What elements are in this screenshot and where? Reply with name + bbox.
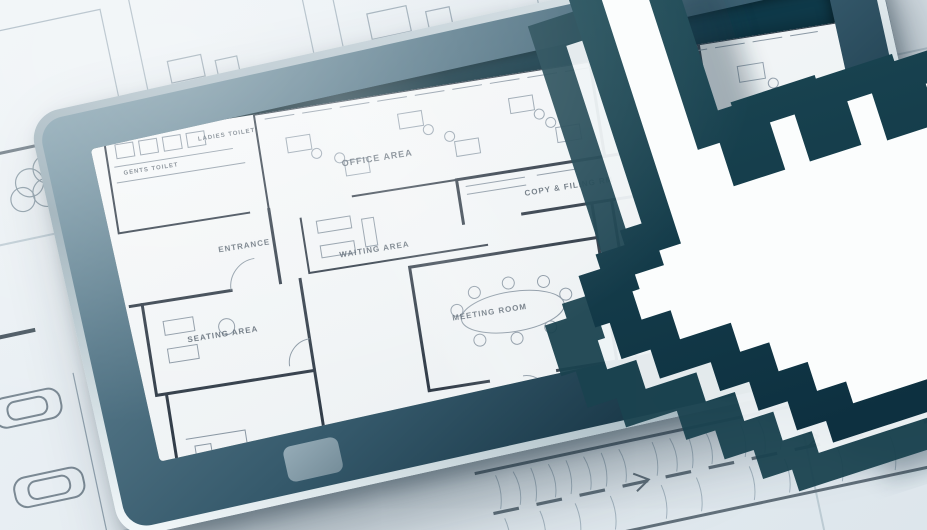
home-button[interactable] [282, 436, 344, 483]
scene: LADIES TOILET GENTS TOILET OFFICE AREA C… [0, 0, 927, 530]
